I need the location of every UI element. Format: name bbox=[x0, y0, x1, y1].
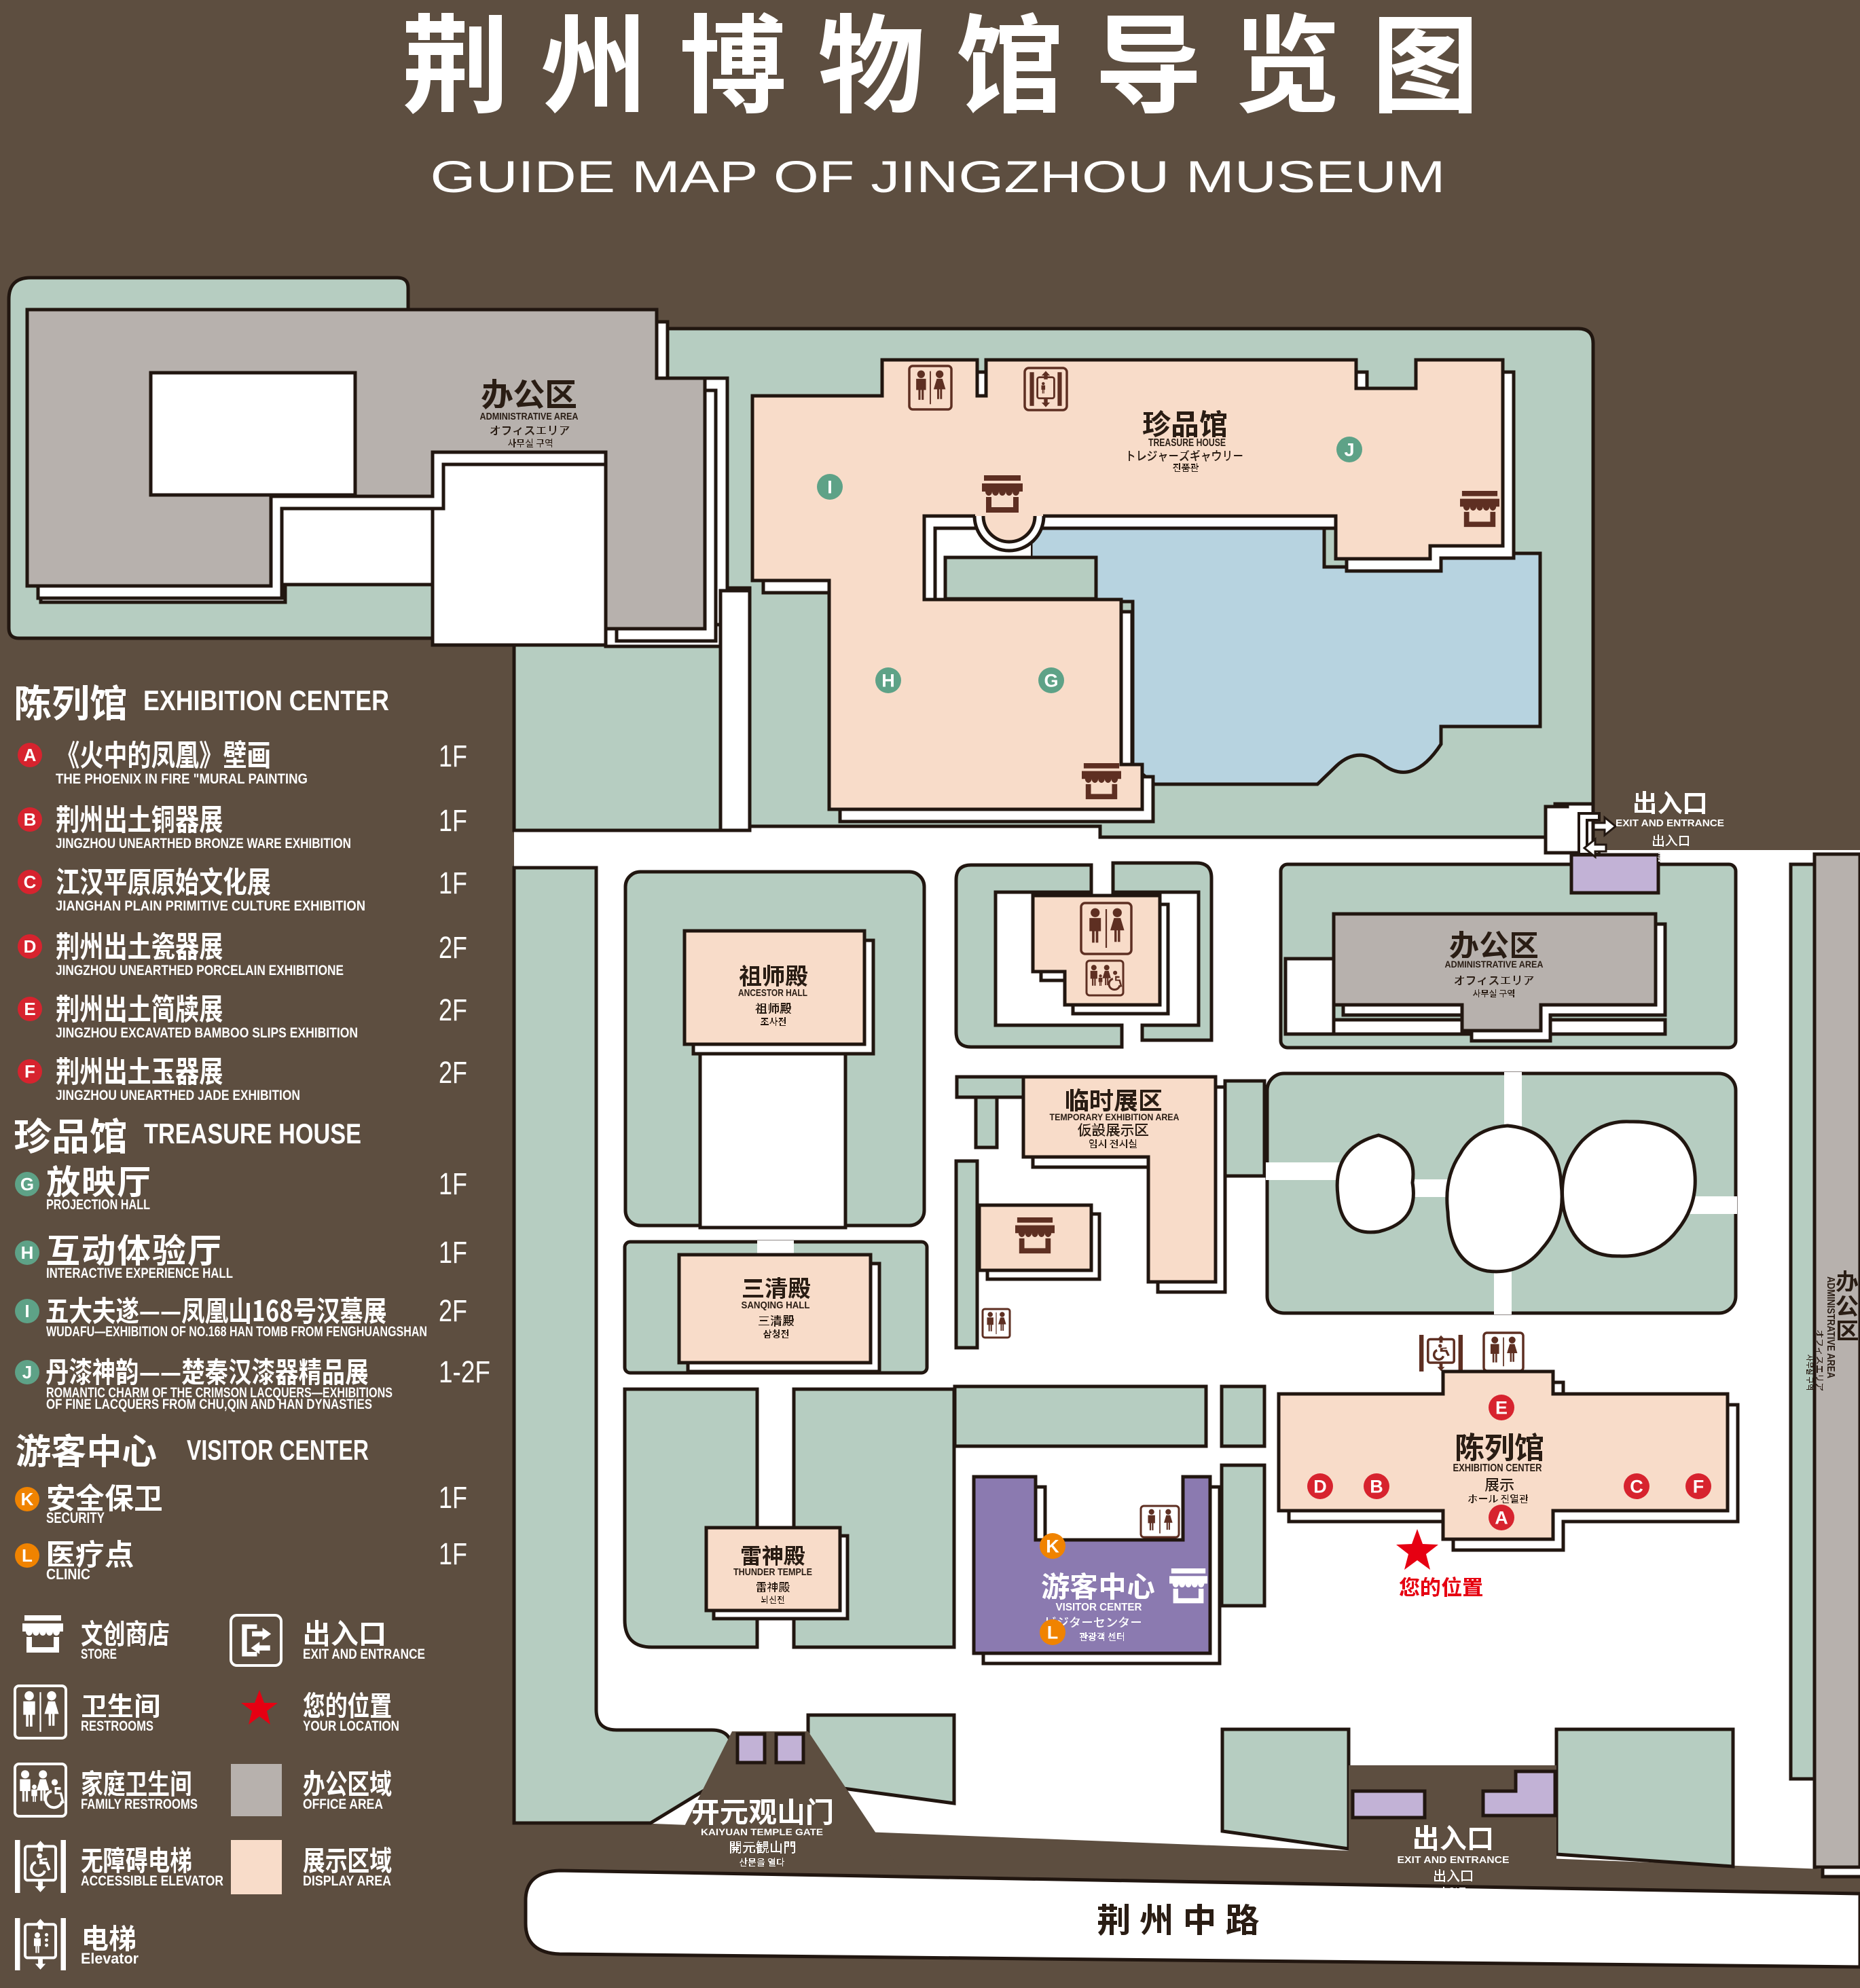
svg-text:2F: 2F bbox=[439, 993, 467, 1027]
svg-text:1-2F: 1-2F bbox=[439, 1355, 490, 1389]
svg-text:THUNDER TEMPLE: THUNDER TEMPLE bbox=[733, 1566, 812, 1578]
svg-text:L: L bbox=[1047, 1622, 1059, 1642]
svg-text:C: C bbox=[1630, 1476, 1643, 1496]
svg-text:OFFICE AREA: OFFICE AREA bbox=[303, 1797, 383, 1812]
svg-text:D: D bbox=[1313, 1476, 1327, 1496]
svg-text:INTERACTIVE EXPERIENCE HALL: INTERACTIVE EXPERIENCE HALL bbox=[46, 1266, 233, 1281]
svg-text:VISITOR CENTER: VISITOR CENTER bbox=[1056, 1602, 1142, 1613]
svg-text:J: J bbox=[22, 1362, 32, 1382]
svg-text:1F: 1F bbox=[439, 1166, 467, 1201]
svg-text:WUDAFU—EXHIBITION OF NO.168 HA: WUDAFU—EXHIBITION OF NO.168 HAN TOMB FRO… bbox=[46, 1324, 427, 1340]
svg-text:E: E bbox=[24, 999, 35, 1019]
svg-text:A: A bbox=[1495, 1507, 1508, 1528]
svg-text:E: E bbox=[1495, 1397, 1508, 1418]
svg-text:2F: 2F bbox=[439, 1293, 467, 1328]
svg-text:YOUR LOCATION: YOUR LOCATION bbox=[303, 1718, 399, 1734]
svg-text:JINGZHOU EXCAVATED BAMBOO SLIP: JINGZHOU EXCAVATED BAMBOO SLIPS EXHIBITI… bbox=[56, 1025, 358, 1041]
svg-text:FAMILY RESTROOMS: FAMILY RESTROOMS bbox=[81, 1797, 198, 1812]
svg-text:G: G bbox=[1044, 670, 1058, 691]
svg-text:1F: 1F bbox=[439, 1480, 467, 1515]
svg-text:Elevator: Elevator bbox=[81, 1950, 139, 1967]
svg-text:STORE: STORE bbox=[81, 1646, 117, 1662]
svg-text:ADMINISTRATIVE AREA: ADMINISTRATIVE AREA bbox=[480, 411, 579, 422]
svg-text:DISPLAY AREA: DISPLAY AREA bbox=[303, 1873, 391, 1889]
svg-text:2F: 2F bbox=[439, 1055, 467, 1090]
svg-text:KAIYUAN TEMPLE GATE: KAIYUAN TEMPLE GATE bbox=[701, 1826, 823, 1837]
svg-text:I: I bbox=[827, 477, 833, 497]
svg-text:EXIT AND ENTRANCE: EXIT AND ENTRANCE bbox=[1398, 1854, 1510, 1866]
svg-text:B: B bbox=[24, 809, 37, 830]
svg-text:G: G bbox=[20, 1174, 34, 1194]
svg-text:K: K bbox=[1046, 1536, 1059, 1556]
svg-text:PROJECTION HALL: PROJECTION HALL bbox=[46, 1197, 150, 1213]
svg-text:SANQING HALL: SANQING HALL bbox=[742, 1300, 810, 1311]
svg-text:1F: 1F bbox=[439, 803, 467, 838]
svg-text:2F: 2F bbox=[439, 930, 467, 965]
svg-text:TREASURE HOUSE: TREASURE HOUSE bbox=[144, 1118, 361, 1149]
svg-text:F: F bbox=[24, 1061, 35, 1082]
svg-text:ANCESTOR HALL: ANCESTOR HALL bbox=[738, 987, 807, 999]
svg-text:EXHIBITION CENTER: EXHIBITION CENTER bbox=[143, 684, 389, 716]
svg-text:EXIT AND ENTRANCE: EXIT AND ENTRANCE bbox=[1616, 817, 1724, 829]
svg-text:I: I bbox=[24, 1301, 29, 1321]
svg-text:C: C bbox=[24, 872, 37, 892]
svg-text:A: A bbox=[24, 745, 37, 765]
svg-text:GUIDE MAP OF JINGZHOU MUSEUM: GUIDE MAP OF JINGZHOU MUSEUM bbox=[431, 151, 1446, 202]
svg-text:L: L bbox=[22, 1545, 33, 1566]
svg-text:K: K bbox=[21, 1489, 34, 1509]
svg-text:THE PHOENIX IN FIRE "MURAL PAI: THE PHOENIX IN FIRE "MURAL PAINTING bbox=[56, 771, 308, 787]
svg-text:SECURITY: SECURITY bbox=[46, 1509, 105, 1526]
svg-text:JINGZHOU UNEARTHED JADE EXHIBI: JINGZHOU UNEARTHED JADE EXHIBITION bbox=[56, 1088, 300, 1103]
svg-text:F: F bbox=[1693, 1476, 1704, 1496]
svg-text:EXIT AND ENTRANCE: EXIT AND ENTRANCE bbox=[303, 1646, 425, 1662]
svg-text:H: H bbox=[21, 1242, 34, 1263]
svg-text:ACCESSIBLE ELEVATOR: ACCESSIBLE ELEVATOR bbox=[81, 1873, 223, 1889]
svg-text:OF FINE LACQUERS FROM CHU,QIN: OF FINE LACQUERS FROM CHU,QIN AND HAN DY… bbox=[46, 1397, 372, 1412]
svg-text:RESTROOMS: RESTROOMS bbox=[81, 1718, 153, 1734]
svg-text:TEMPORARY EXHIBITION AREA: TEMPORARY EXHIBITION AREA bbox=[1050, 1111, 1180, 1122]
svg-text:H: H bbox=[881, 670, 895, 691]
svg-text:1F: 1F bbox=[439, 866, 467, 900]
svg-text:EXHIBITION CENTER: EXHIBITION CENTER bbox=[1453, 1462, 1542, 1474]
svg-text:J: J bbox=[1344, 439, 1354, 460]
svg-text:JIANGHAN PLAIN PRIMITIVE CULTU: JIANGHAN PLAIN PRIMITIVE CULTURE EXHIBIT… bbox=[56, 898, 365, 914]
svg-text:TREASURE HOUSE: TREASURE HOUSE bbox=[1148, 437, 1226, 449]
svg-text:ADMINISTRATIVE AREA: ADMINISTRATIVE AREA bbox=[1825, 1276, 1836, 1378]
svg-text:JINGZHOU UNEARTHED BRONZE WARE: JINGZHOU UNEARTHED BRONZE WARE EXHIBITIO… bbox=[56, 836, 351, 851]
svg-text:B: B bbox=[1370, 1476, 1383, 1496]
svg-text:ADMINISTRATIVE AREA: ADMINISTRATIVE AREA bbox=[1445, 959, 1544, 970]
svg-text:JINGZHOU UNEARTHED PORCELAIN E: JINGZHOU UNEARTHED PORCELAIN EXHIBITIONE bbox=[56, 963, 344, 978]
svg-text:1F: 1F bbox=[439, 1536, 467, 1571]
svg-text:D: D bbox=[24, 936, 37, 957]
svg-text:1F: 1F bbox=[439, 739, 467, 773]
svg-text:VISITOR CENTER: VISITOR CENTER bbox=[187, 1434, 369, 1466]
svg-text:CLINIC: CLINIC bbox=[46, 1566, 90, 1583]
svg-text:1F: 1F bbox=[439, 1235, 467, 1270]
